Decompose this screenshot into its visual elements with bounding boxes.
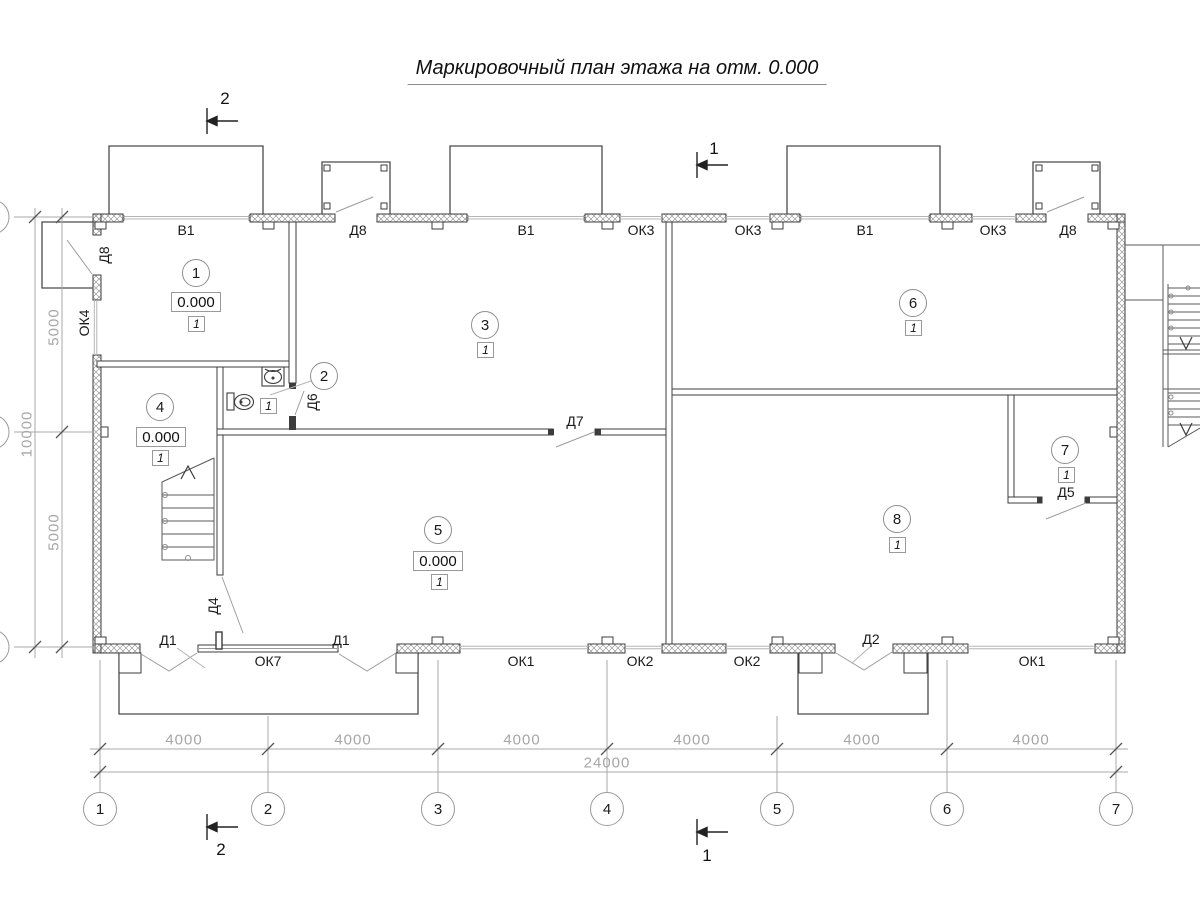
porches <box>42 146 1100 714</box>
opening-label-d8: Д8 <box>96 246 112 263</box>
room-number-circle: 4 <box>146 393 174 421</box>
elevation-box: 0.000 <box>136 427 186 447</box>
section-label-2-top: 2 <box>220 89 229 109</box>
opening-label-v1: В1 <box>517 222 534 238</box>
room-number: 1 <box>192 265 200 282</box>
dim-bay: 4000 <box>673 732 710 749</box>
axis-circle-4: 4 <box>590 792 624 826</box>
opening-label-v1: В1 <box>856 222 873 238</box>
opening-label-d7: Д7 <box>566 413 583 429</box>
room-number-circle: 1 <box>182 259 210 287</box>
opening-label-ok3: ОК3 <box>735 222 762 238</box>
dim-bay: 4000 <box>165 732 202 749</box>
finish-type: 1 <box>482 343 489 357</box>
finish-type-box: 1 <box>152 450 169 466</box>
opening-label-ok2: ОК2 <box>734 653 761 669</box>
axis-number: 1 <box>96 801 104 818</box>
opening-label-ok4: ОК4 <box>76 310 92 337</box>
porch-posts <box>119 165 1098 673</box>
dim-bay: 4000 <box>1012 732 1049 749</box>
opening-label-ok1: ОК1 <box>1019 653 1046 669</box>
opening-label-d4: Д4 <box>205 597 221 614</box>
opening-label-v1: В1 <box>177 222 194 238</box>
dim-bay: 4000 <box>334 732 371 749</box>
dim-bay: 4000 <box>503 732 540 749</box>
axis-circle-6: 6 <box>930 792 964 826</box>
floor-plan-sheet: Маркировочный план этажа на отм. 0.000 2… <box>0 0 1200 900</box>
sink-symbol <box>262 367 284 386</box>
label-leaders <box>177 381 871 668</box>
opening-label-d8: Д8 <box>349 222 366 238</box>
finish-type: 1 <box>193 317 200 331</box>
room-number-circle: 5 <box>424 516 452 544</box>
room-number-circle: 2 <box>310 362 338 390</box>
room-number: 3 <box>481 317 489 334</box>
finish-type-box: 1 <box>431 574 448 590</box>
dim-half-depth: 5000 <box>46 308 63 345</box>
axis-circle-1: 1 <box>83 792 117 826</box>
opening-label-ok3: ОК3 <box>980 222 1007 238</box>
dim-half-depth: 5000 <box>46 513 63 550</box>
axis-circle-5: 5 <box>760 792 794 826</box>
interior-walls <box>97 222 1117 649</box>
axis-circle-3: 3 <box>421 792 455 826</box>
room-number-circle: 3 <box>471 311 499 339</box>
section-label-2-bottom: 2 <box>216 840 225 860</box>
finish-type: 1 <box>436 575 443 589</box>
axis-number: 6 <box>943 801 951 818</box>
elevation-value: 0.000 <box>142 429 180 446</box>
room-number: 7 <box>1061 442 1069 459</box>
room-number: 5 <box>434 522 442 539</box>
finish-type-box: 1 <box>260 398 277 414</box>
exterior-stair <box>1125 245 1200 447</box>
door-jambs <box>289 383 1090 503</box>
room-number: 8 <box>893 511 901 528</box>
axis-number: 5 <box>773 801 781 818</box>
opening-label-d1: Д1 <box>332 632 349 648</box>
opening-label-d5: Д5 <box>1057 484 1074 500</box>
room-number-circle: 6 <box>899 289 927 317</box>
room-number-circle: 7 <box>1051 436 1079 464</box>
dim-bay: 4000 <box>843 732 880 749</box>
finish-type-box: 1 <box>477 342 494 358</box>
elevation-value: 0.000 <box>419 553 457 570</box>
dim-total: 24000 <box>584 755 631 772</box>
room-number: 4 <box>156 399 164 416</box>
finish-type: 1 <box>894 538 901 552</box>
finish-type-box: 1 <box>1058 467 1075 483</box>
opening-label-ok7: ОК7 <box>255 653 282 669</box>
axis-circle-2: 2 <box>251 792 285 826</box>
axis-number: 3 <box>434 801 442 818</box>
opening-label-ok3: ОК3 <box>628 222 655 238</box>
opening-label-d6: Д6 <box>304 393 320 410</box>
axis-circle-7: 7 <box>1099 792 1133 826</box>
finish-type: 1 <box>910 321 917 335</box>
axis-number: 2 <box>264 801 272 818</box>
opening-label-ok2: ОК2 <box>627 653 654 669</box>
room-number: 2 <box>320 368 328 385</box>
elevation-box: 0.000 <box>413 551 463 571</box>
opening-label-d1: Д1 <box>159 632 176 648</box>
finish-type-box: 1 <box>889 537 906 553</box>
drawing-title: Маркировочный план этажа на отм. 0.000 <box>408 57 827 85</box>
dim-total-depth: 10000 <box>19 411 36 458</box>
finish-type: 1 <box>157 451 164 465</box>
opening-label-d8: Д8 <box>1059 222 1076 238</box>
room-number: 6 <box>909 295 917 312</box>
axis-number: 7 <box>1112 801 1120 818</box>
opening-label-ok1: ОК1 <box>508 653 535 669</box>
finish-type: 1 <box>1063 468 1070 482</box>
section-label-1-top: 1 <box>709 139 718 159</box>
finish-type-box: 1 <box>188 316 205 332</box>
section-label-1-bottom: 1 <box>702 846 711 866</box>
elevation-box: 0.000 <box>171 292 221 312</box>
toilet-symbol <box>227 393 254 410</box>
opening-label-d2: Д2 <box>862 631 879 647</box>
finish-type: 1 <box>265 399 272 413</box>
elevation-value: 0.000 <box>177 294 215 311</box>
interior-stair <box>162 458 214 561</box>
axis-number: 4 <box>603 801 611 818</box>
room-number-circle: 8 <box>883 505 911 533</box>
finish-type-box: 1 <box>905 320 922 336</box>
axis-circles-left <box>0 200 9 664</box>
